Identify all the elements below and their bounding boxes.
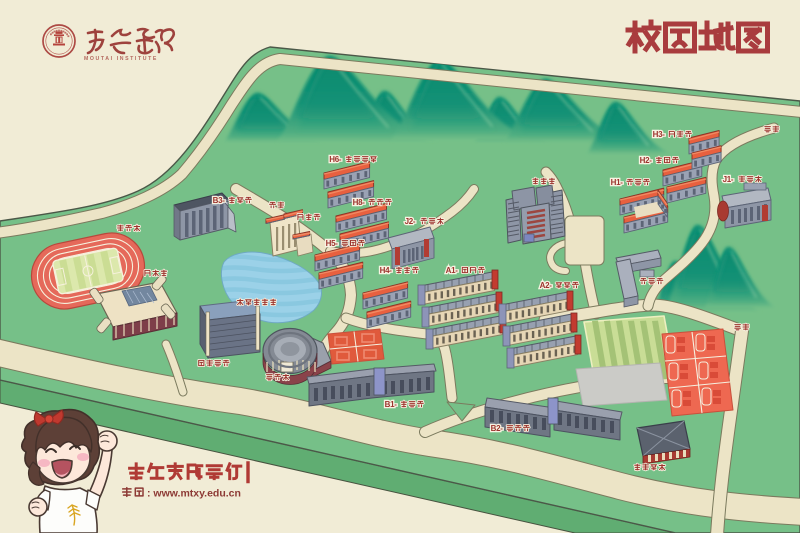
svg-text:B3-: B3- bbox=[213, 196, 226, 205]
svg-text:B1-: B1- bbox=[385, 400, 398, 409]
svg-text:J1-: J1- bbox=[723, 175, 734, 184]
svg-text:H1-: H1- bbox=[611, 178, 624, 187]
svg-text:H3-: H3- bbox=[653, 130, 666, 139]
svg-text:A2-: A2- bbox=[540, 281, 553, 290]
svg-text:A1-: A1- bbox=[446, 266, 459, 275]
svg-text:H6-: H6- bbox=[329, 155, 342, 164]
svg-text:H8-: H8- bbox=[353, 198, 366, 207]
svg-text:B2-: B2- bbox=[491, 424, 504, 433]
svg-text:H4-: H4- bbox=[380, 266, 393, 275]
svg-text:H5-: H5- bbox=[326, 239, 339, 248]
svg-text:MOUTAI INSTITUTE: MOUTAI INSTITUTE bbox=[84, 56, 158, 62]
svg-text:: www.mtxy.edu.cn: : www.mtxy.edu.cn bbox=[147, 488, 241, 500]
svg-text:J2-: J2- bbox=[405, 217, 416, 226]
svg-text:H2-: H2- bbox=[640, 156, 653, 165]
